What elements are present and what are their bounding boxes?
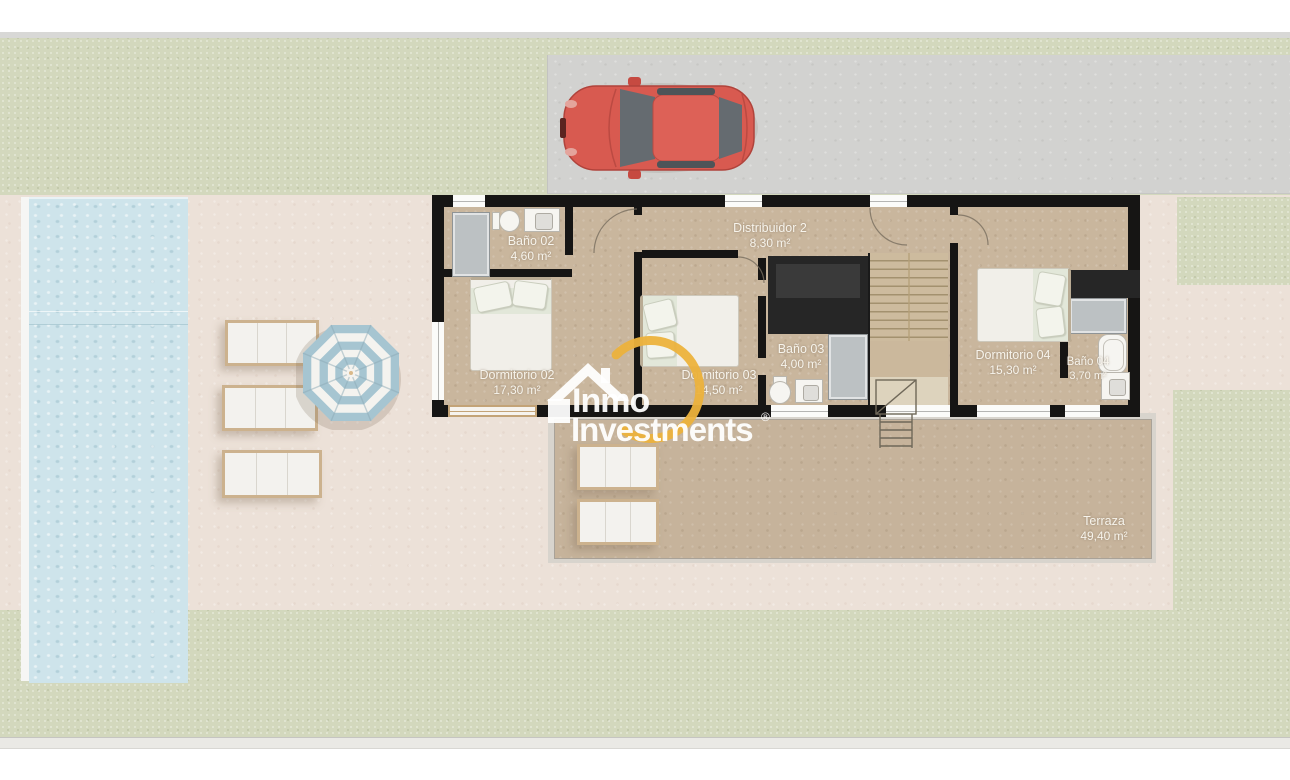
car-mirror xyxy=(628,170,641,179)
room-label-bano-04: Baño 04 3,70 m² xyxy=(1067,356,1110,383)
lounger-seam xyxy=(256,453,257,495)
room-label-bano-02: Baño 02 4,60 m² xyxy=(508,234,555,263)
pool-edge xyxy=(21,197,29,681)
car-rear-window xyxy=(719,97,742,159)
lounger-seam xyxy=(287,453,288,495)
lounger-seam xyxy=(255,388,256,428)
car-side-window xyxy=(657,161,715,168)
lounger-seam xyxy=(257,323,258,363)
parasol-umbrella-icon xyxy=(296,318,408,430)
logo-text-line2: Investments xyxy=(571,411,753,448)
registered-mark: ® xyxy=(761,410,770,424)
room-name: Baño 02 xyxy=(508,234,555,249)
room-name: Baño 04 xyxy=(1067,356,1110,370)
grass-patch-right-top xyxy=(1177,197,1290,285)
room-label-dormitorio-04: Dormitorio 04 15,30 m² xyxy=(975,348,1050,377)
room-label-terraza: Terraza 49,40 m² xyxy=(1080,514,1127,543)
lounger-seam xyxy=(605,502,606,542)
room-name: Distribuidor 2 xyxy=(733,221,807,236)
room-area: 15,30 m² xyxy=(975,363,1050,377)
car-headlight xyxy=(565,148,577,156)
car-roof xyxy=(653,95,721,161)
room-label-distribuidor-2: Distribuidor 2 8,30 m² xyxy=(733,221,807,250)
grass-patch-right-bottom xyxy=(1173,390,1290,615)
room-name: Baño 03 xyxy=(778,342,825,357)
room-area: 49,40 m² xyxy=(1080,529,1127,543)
room-area: 3,70 m² xyxy=(1067,370,1110,383)
swimming-pool xyxy=(29,197,188,683)
sun-lounger xyxy=(222,450,322,498)
car-grille xyxy=(560,118,566,138)
car-headlight xyxy=(565,100,577,108)
lounger-seam xyxy=(630,502,631,542)
room-area: 8,30 m² xyxy=(733,236,807,250)
lounger-seam xyxy=(285,388,286,428)
lounger-seam xyxy=(286,323,287,363)
inmo-investments-watermark: Inmo Investments ® xyxy=(533,333,783,473)
grass-bottom xyxy=(0,610,1290,737)
pool-seam xyxy=(29,311,188,312)
room-area: 4,60 m² xyxy=(508,249,555,263)
car-mirror xyxy=(628,77,641,86)
room-area: 4,00 m² xyxy=(778,357,825,371)
car-windshield xyxy=(620,89,655,167)
sidewalk xyxy=(0,737,1290,749)
sun-lounger xyxy=(577,499,659,545)
room-name: Dormitorio 04 xyxy=(975,348,1050,363)
pool-seam xyxy=(29,324,188,325)
room-label-bano-03: Baño 03 4,00 m² xyxy=(778,342,825,371)
floor-plan-image: Baño 02 4,60 m² Distribuidor 2 8,30 m² D… xyxy=(0,0,1290,780)
car-side-window xyxy=(657,88,715,95)
red-car xyxy=(558,76,768,180)
exterior-stair-icon xyxy=(872,378,922,452)
room-name: Terraza xyxy=(1080,514,1127,529)
